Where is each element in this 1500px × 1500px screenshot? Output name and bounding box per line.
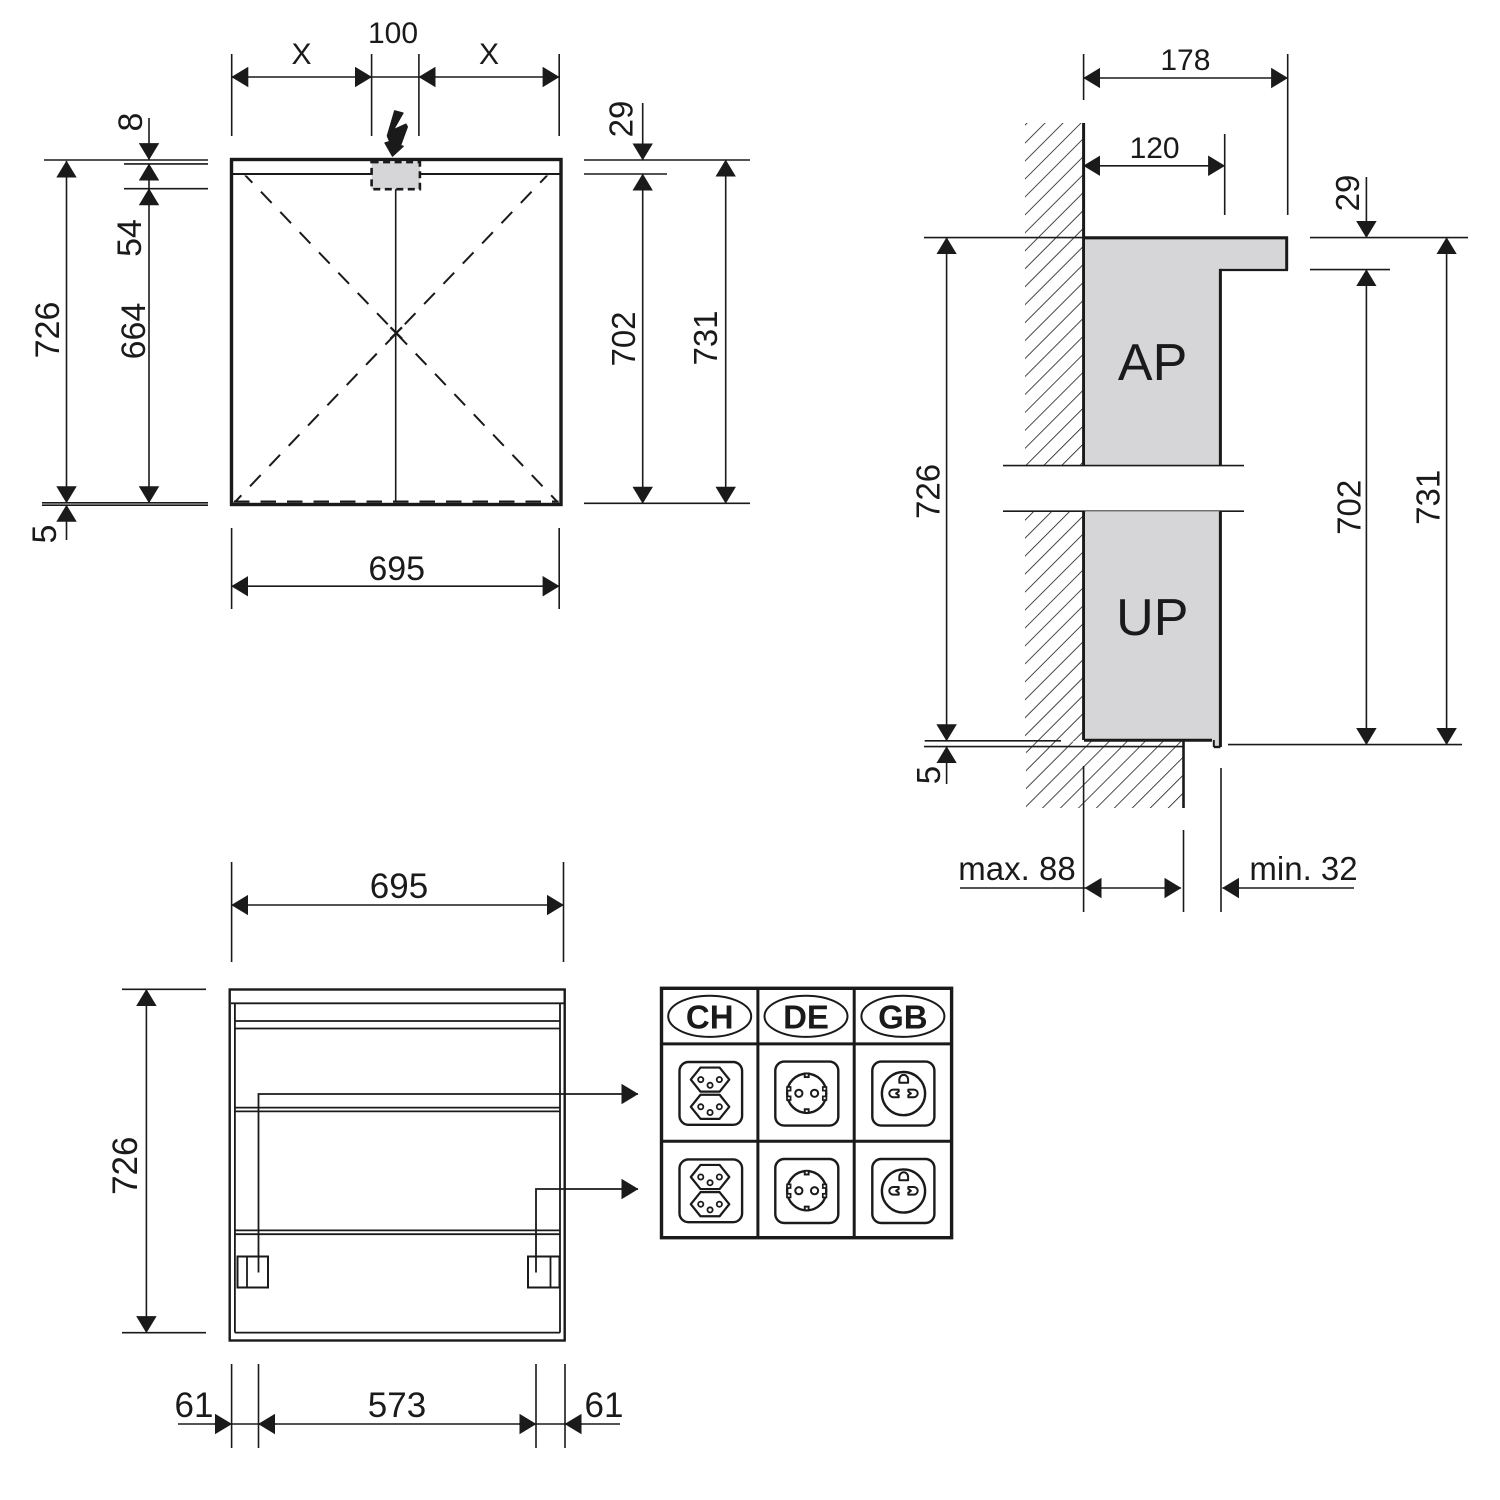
- svg-text:61: 61: [175, 1386, 214, 1425]
- svg-text:min. 32: min. 32: [1249, 850, 1357, 887]
- svg-text:max. 88: max. 88: [958, 850, 1075, 887]
- svg-text:GB: GB: [878, 999, 928, 1036]
- svg-text:29: 29: [603, 101, 640, 138]
- svg-text:CH: CH: [686, 999, 734, 1036]
- svg-text:29: 29: [1329, 175, 1366, 212]
- svg-text:120: 120: [1130, 132, 1180, 165]
- svg-text:664: 664: [115, 303, 153, 360]
- svg-text:726: 726: [29, 302, 67, 359]
- svg-text:100: 100: [368, 17, 418, 50]
- svg-text:702: 702: [1330, 480, 1367, 535]
- svg-text:X: X: [291, 38, 311, 71]
- svg-text:178: 178: [1160, 44, 1210, 77]
- svg-text:AP: AP: [1118, 334, 1187, 392]
- svg-text:695: 695: [370, 867, 428, 906]
- svg-text:DE: DE: [783, 999, 829, 1036]
- svg-text:UP: UP: [1116, 589, 1188, 647]
- svg-text:5: 5: [910, 766, 947, 784]
- svg-text:695: 695: [368, 550, 425, 588]
- svg-text:8: 8: [112, 113, 150, 132]
- svg-text:726: 726: [106, 1136, 145, 1194]
- svg-text:573: 573: [368, 1386, 426, 1425]
- svg-text:61: 61: [585, 1386, 624, 1425]
- svg-text:5: 5: [26, 525, 64, 544]
- svg-text:731: 731: [687, 310, 724, 365]
- svg-text:726: 726: [909, 464, 946, 519]
- svg-text:54: 54: [111, 219, 149, 257]
- svg-text:X: X: [479, 38, 499, 71]
- svg-text:731: 731: [1410, 470, 1447, 525]
- svg-text:702: 702: [605, 311, 642, 366]
